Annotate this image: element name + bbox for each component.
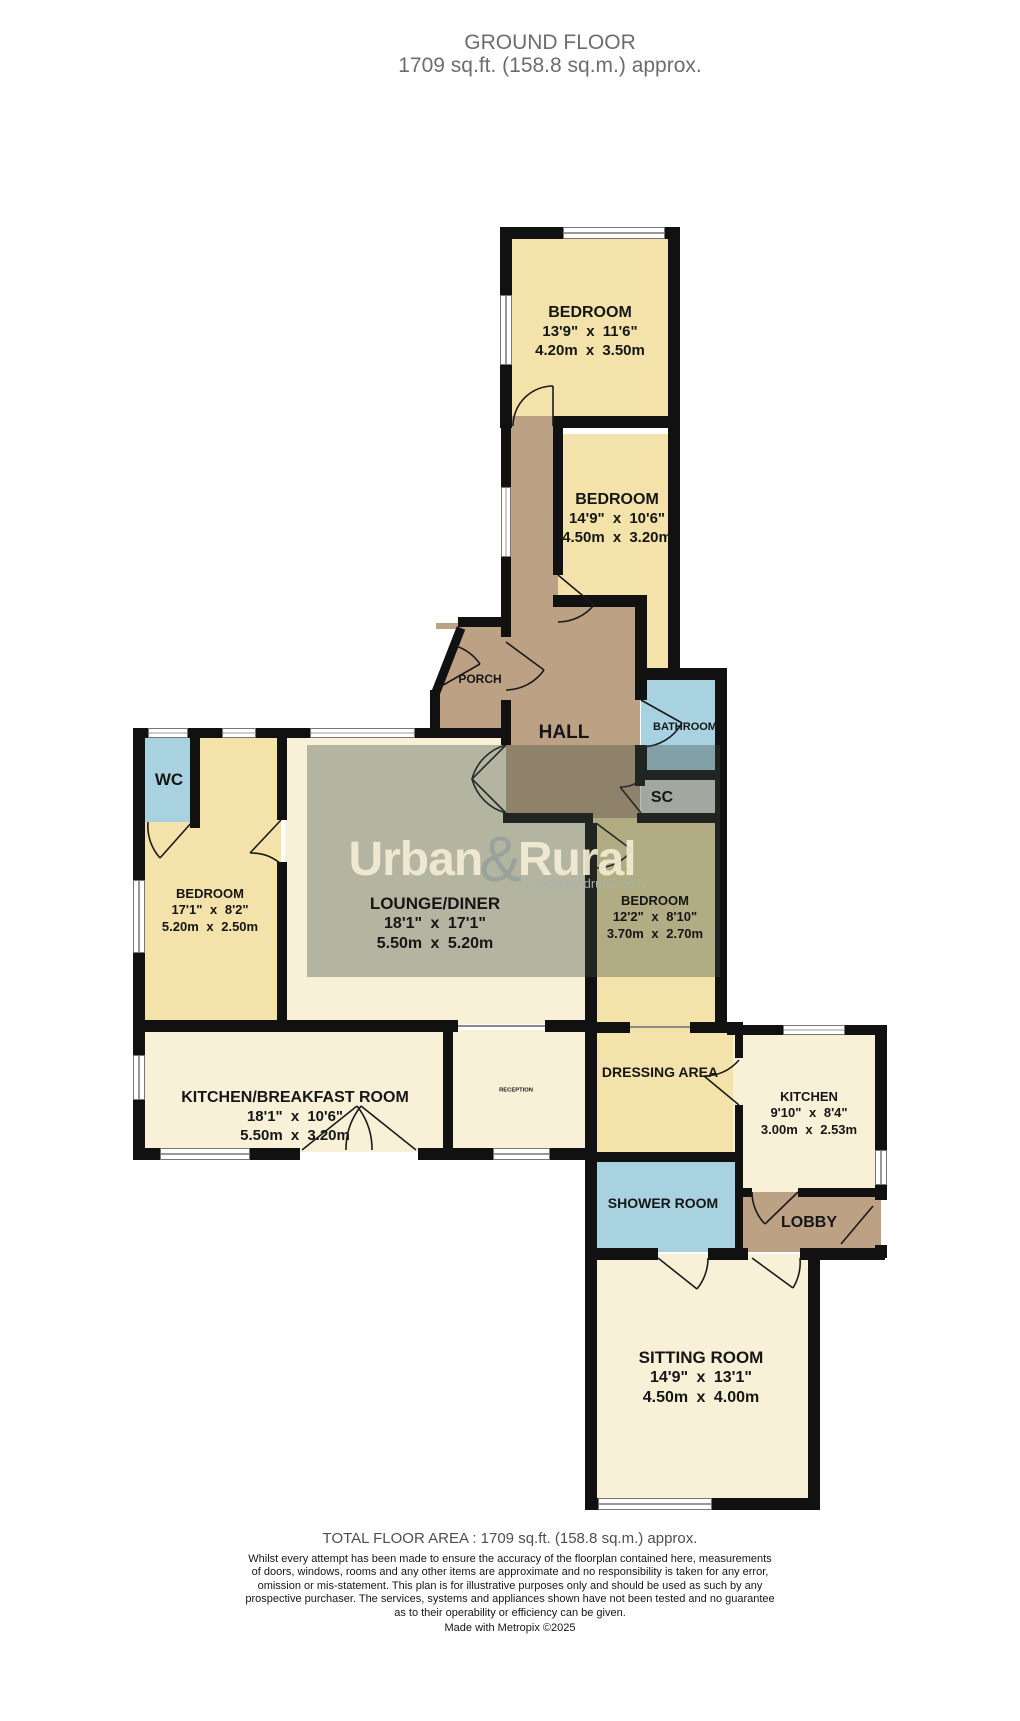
door-wc [148, 822, 192, 858]
sitting-room-label: SITTING ROOM 14'9" x 13'1" 4.50m x 4.00m [639, 1347, 764, 1408]
disclaimer-line: of doors, windows, rooms and any other i… [245, 1566, 774, 1579]
total-floor-area: TOTAL FLOOR AREA : 1709 sq.ft. (158.8 sq… [323, 1530, 698, 1547]
lounge-diner-label: LOUNGE/DINER 18'1" x 17'1" 5.50m x 5.20m [370, 893, 500, 954]
bedroom-two-label: BEDROOM 14'9" x 10'6" 4.50m x 3.20m [562, 490, 672, 548]
door-lobby-sitting [752, 1258, 800, 1288]
floorplan-page: GROUND FLOOR 1709 sq.ft. (158.8 sq.m.) a… [0, 0, 1020, 1721]
disclaimer-line: Whilst every attempt has been made to en… [245, 1553, 774, 1566]
door-porch-hall [506, 642, 544, 690]
page-title: GROUND FLOOR [464, 31, 636, 55]
disclaimer-line: omission or mis-statement. This plan is … [245, 1580, 774, 1593]
door-bedroom-top [513, 386, 553, 426]
bathroom-label: BATHROOM [653, 721, 717, 733]
sc-label: SC [651, 789, 673, 807]
metropix-credit: Made with Metropix ©2025 [245, 1622, 774, 1635]
wc-label: WC [155, 770, 183, 790]
hall-label: HALL [539, 722, 590, 744]
shower-room-label: SHOWER ROOM [608, 1195, 718, 1211]
reception-label: RECEPTION [499, 1087, 533, 1093]
kitchen-breakfast-label: KITCHEN/BREAKFAST ROOM 18'1" x 10'6" 5.5… [181, 1088, 409, 1146]
disclaimer-line: as to their operability or efficiency ca… [245, 1607, 774, 1620]
watermark-url: urbanandrural.com [445, 876, 645, 891]
door-bedroom-left [250, 820, 281, 864]
door-shower-sitting [658, 1258, 708, 1289]
bedroom-top-label: BEDROOM 13'9" x 11'6" 4.20m x 3.50m [535, 303, 645, 361]
bedroom-left-label: BEDROOM 17'1" x 8'2" 5.20m x 2.50m [162, 886, 258, 935]
disclaimer-line: prospective purchaser. The services, sys… [245, 1593, 774, 1606]
lobby-label: LOBBY [781, 1214, 837, 1232]
bedroom-four-label: BEDROOM 12'2" x 8'10" 3.70m x 2.70m [607, 893, 703, 942]
page-subtitle: 1709 sq.ft. (158.8 sq.m.) approx. [398, 54, 702, 78]
porch-label: PORCH [458, 672, 501, 686]
door-bedroom-two [558, 575, 594, 622]
door-lobby-external [841, 1206, 873, 1244]
kitchen-label: KITCHEN 9'10" x 8'4" 3.00m x 2.53m [761, 1089, 857, 1138]
dressing-area-label: DRESSING AREA [602, 1064, 718, 1080]
disclaimer: Whilst every attempt has been made to en… [245, 1553, 774, 1635]
